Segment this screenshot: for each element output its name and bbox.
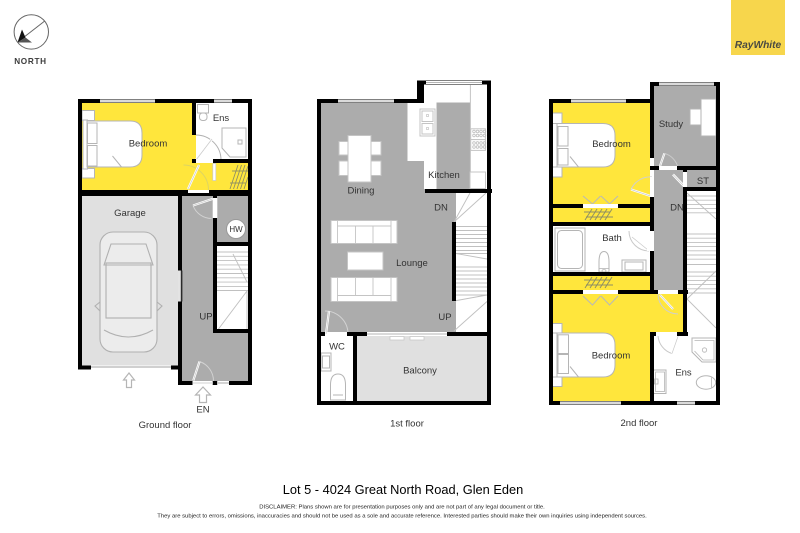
svg-text:DN: DN [434, 203, 448, 214]
svg-text:Bedroom: Bedroom [129, 139, 168, 150]
svg-text:Ens: Ens [213, 113, 230, 124]
svg-text:Balcony: Balcony [403, 366, 437, 377]
svg-text:1st floor: 1st floor [390, 419, 424, 430]
svg-text:Bedroom: Bedroom [592, 351, 631, 362]
svg-text:Lot 5 - 4024 Great North Road,: Lot 5 - 4024 Great North Road, Glen Eden [283, 482, 523, 497]
svg-text:RayWhite: RayWhite [735, 40, 782, 51]
svg-text:Bedroom: Bedroom [592, 139, 631, 150]
svg-text:Kitchen: Kitchen [428, 170, 460, 181]
svg-text:EN: EN [196, 405, 209, 416]
svg-text:HW: HW [229, 225, 243, 234]
svg-text:WC: WC [329, 342, 345, 353]
svg-text:Garage: Garage [114, 208, 146, 219]
svg-text:DISCLAIMER: Plans shown are fo: DISCLAIMER: Plans shown are for presenta… [259, 505, 545, 511]
svg-text:Bath: Bath [602, 233, 622, 244]
svg-text:Lounge: Lounge [396, 258, 428, 269]
svg-text:They are subject to errors, om: They are subject to errors, omissions, i… [157, 514, 647, 520]
svg-text:UP: UP [199, 312, 212, 323]
svg-text:NORTH: NORTH [14, 57, 47, 66]
svg-text:Dining: Dining [348, 186, 375, 197]
svg-text:Ground floor: Ground floor [139, 420, 192, 431]
svg-text:Study: Study [659, 119, 684, 130]
svg-text:ST: ST [697, 176, 709, 187]
svg-text:2nd floor: 2nd floor [621, 418, 658, 429]
svg-text:DN: DN [670, 203, 684, 214]
svg-text:UP: UP [438, 312, 451, 323]
svg-text:Ens: Ens [675, 368, 692, 379]
